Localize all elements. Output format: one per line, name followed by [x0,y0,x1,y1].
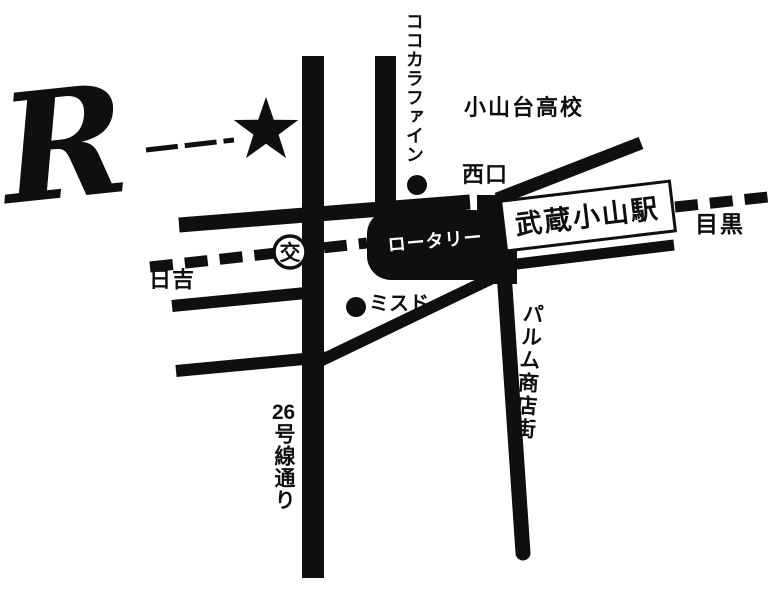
road-diagonal-to-rotary [320,272,505,361]
access-map: R ココカラファイン 小山台高校 西口 武蔵小山駅 目黒 日吉 ロータリー 交 … [0,0,778,591]
label-police-box: 交 [278,240,302,264]
label-pharmacy: ココカラファイン [404,12,423,164]
logo-r: R [0,64,134,226]
label-west-exit: 西口 [462,163,508,186]
label-route26: 26号線通り [272,402,294,511]
road-west-middle [172,293,306,306]
railway-dashed-east [675,197,768,207]
pharmacy-marker-dot [407,175,427,195]
road-route26-vertical [302,56,324,578]
label-donut-shop: ミスド [369,294,429,315]
label-route26-name: 号線通り [272,423,295,511]
donut-shop-marker-dot [346,297,366,317]
railway-dashed-west [150,243,367,267]
destination-star-icon [234,97,299,158]
label-direction-hiyoshi: 日吉 [149,268,195,291]
label-high-school: 小山台高校 [464,96,584,119]
label-route26-number: 26 [272,402,295,423]
logo-connector-dashes [146,140,234,150]
road-north-short-vertical [375,56,396,214]
label-direction-meguro: 目黒 [695,212,745,236]
